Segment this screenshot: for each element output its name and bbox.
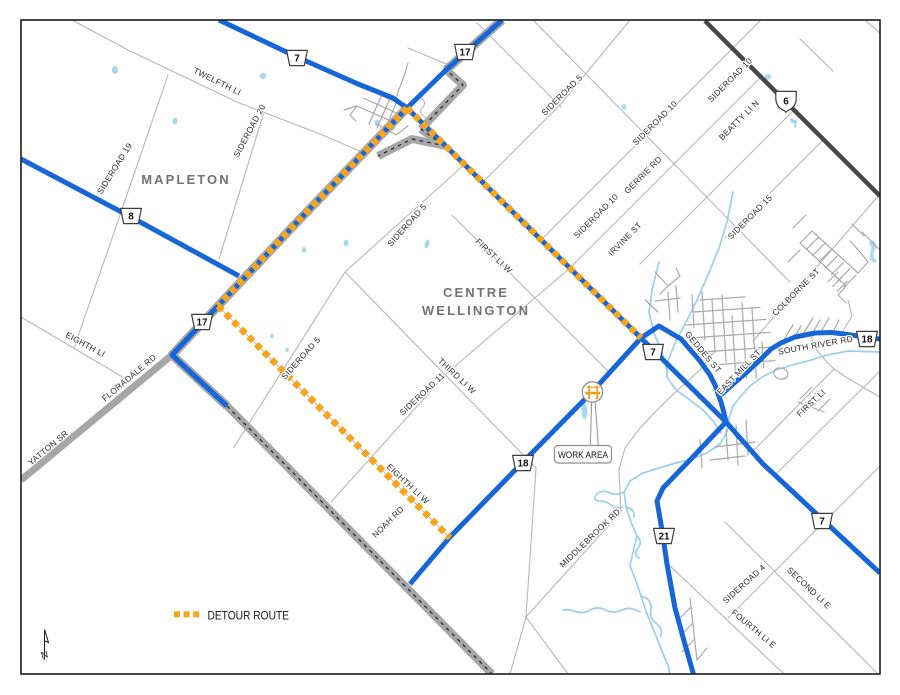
svg-text:7: 7 (819, 517, 825, 528)
svg-text:8: 8 (128, 212, 134, 223)
svg-text:7: 7 (294, 54, 300, 65)
svg-text:18: 18 (518, 459, 529, 470)
svg-text:18: 18 (862, 335, 873, 346)
svg-text:WELLINGTON: WELLINGTON (422, 303, 530, 318)
svg-text:CENTRE: CENTRE (443, 285, 509, 300)
svg-text:7: 7 (650, 348, 656, 359)
svg-text:MAPLETON: MAPLETON (141, 172, 231, 187)
svg-text:WORK AREA: WORK AREA (558, 450, 609, 460)
svg-text:DETOUR ROUTE: DETOUR ROUTE (208, 608, 290, 622)
svg-text:17: 17 (460, 48, 471, 59)
svg-text:21: 21 (659, 532, 670, 543)
svg-text:17: 17 (197, 318, 208, 329)
svg-text:6: 6 (783, 97, 789, 108)
